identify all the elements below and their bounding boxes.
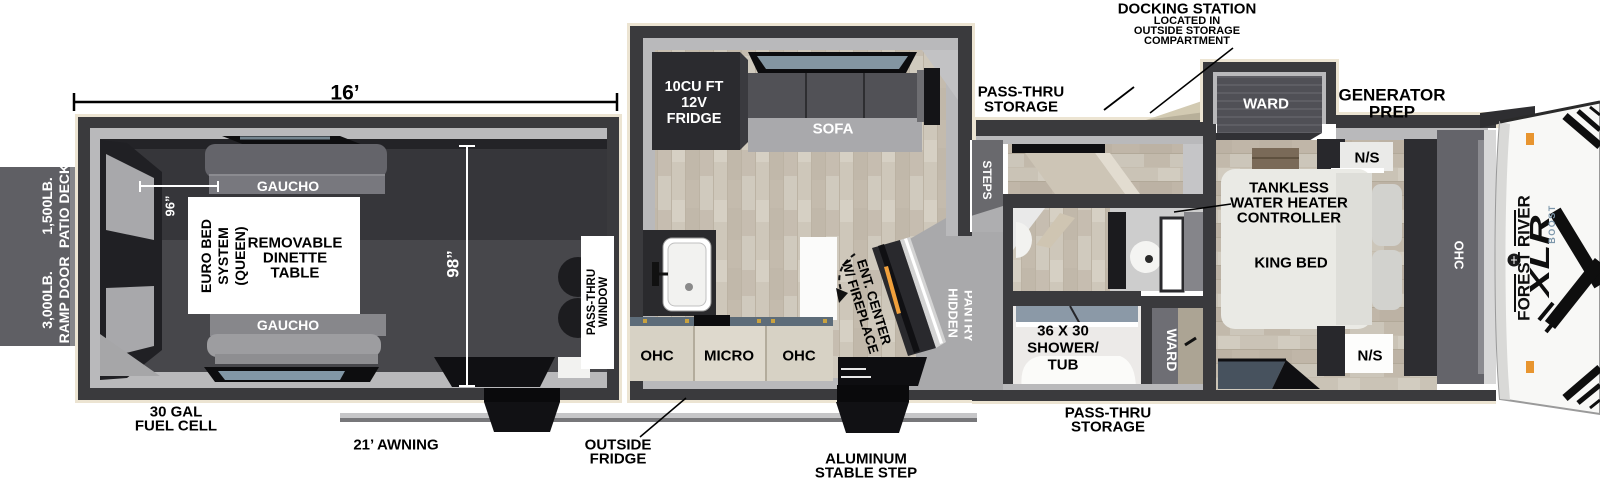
svg-text:3,000LB.: 3,000LB.: [39, 271, 55, 329]
svg-text:16’: 16’: [330, 82, 359, 105]
svg-text:RAMP DOOR: RAMP DOOR: [56, 257, 72, 344]
svg-text:TUB: TUB: [1048, 357, 1079, 374]
svg-text:N/S: N/S: [1354, 150, 1379, 167]
svg-text:COMPARTMENT: COMPARTMENT: [1144, 35, 1230, 47]
svg-text:STORAGE: STORAGE: [984, 99, 1058, 116]
svg-text:GAUCHO: GAUCHO: [257, 178, 319, 194]
svg-text:OHC: OHC: [640, 348, 674, 365]
svg-text:10CU FT: 10CU FT: [665, 79, 724, 95]
svg-text:21’ AWNING: 21’ AWNING: [353, 437, 438, 454]
svg-text:WARD: WARD: [1164, 329, 1180, 372]
svg-text:STORAGE: STORAGE: [1071, 419, 1145, 436]
svg-text:FUEL CELL: FUEL CELL: [135, 418, 217, 435]
svg-text:SOFA: SOFA: [813, 121, 854, 138]
svg-text:WARD: WARD: [1243, 96, 1289, 113]
svg-text:CONTROLLER: CONTROLLER: [1237, 210, 1341, 227]
svg-text:STEPS: STEPS: [980, 160, 994, 199]
svg-text:PASS-THRU: PASS-THRU: [586, 269, 598, 335]
svg-text:98”: 98”: [444, 250, 463, 277]
svg-text:12V: 12V: [681, 95, 707, 111]
svg-text:96”: 96”: [163, 196, 178, 217]
svg-text:PATIO DECK: PATIO DECK: [56, 164, 72, 248]
svg-text:OHC: OHC: [782, 348, 816, 365]
svg-text:TABLE: TABLE: [271, 265, 320, 282]
svg-text:BOOST: BOOST: [1547, 204, 1557, 244]
svg-text:OHC: OHC: [1452, 241, 1467, 271]
svg-text:FRIDGE: FRIDGE: [667, 111, 722, 127]
svg-text:1,500LB.: 1,500LB.: [39, 177, 55, 235]
svg-text:HIDDEN: HIDDEN: [946, 288, 961, 338]
svg-text:KING BED: KING BED: [1254, 255, 1328, 272]
svg-text:(QUEEN): (QUEEN): [232, 226, 248, 285]
svg-text:SYSTEM: SYSTEM: [215, 227, 231, 285]
svg-text:FRIDGE: FRIDGE: [590, 451, 647, 468]
svg-text:36 X 30: 36 X 30: [1037, 323, 1089, 340]
svg-text:SHOWER/: SHOWER/: [1027, 340, 1100, 357]
svg-text:N/S: N/S: [1357, 348, 1382, 365]
svg-text:PREP: PREP: [1369, 103, 1415, 122]
svg-text:WINDOW: WINDOW: [598, 277, 610, 328]
svg-text:GAUCHO: GAUCHO: [257, 317, 319, 333]
svg-text:STABLE STEP: STABLE STEP: [815, 465, 917, 479]
svg-text:MICRO: MICRO: [704, 348, 754, 365]
svg-text:EURO BED: EURO BED: [198, 219, 214, 293]
